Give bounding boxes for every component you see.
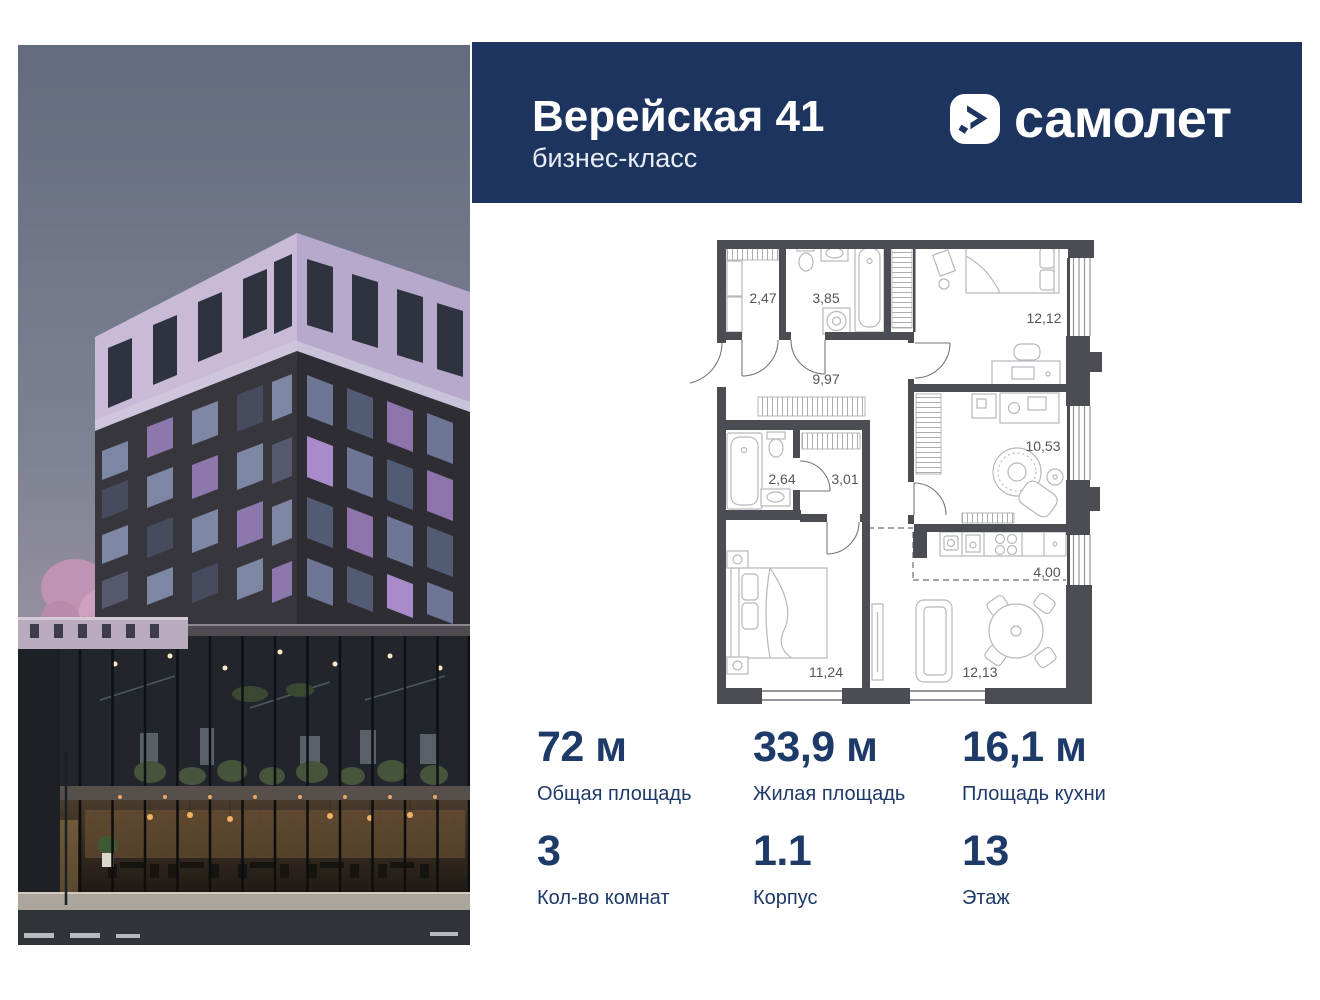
decor-icon — [933, 250, 956, 289]
stat-value: 3 — [537, 830, 669, 873]
stat-living-area: 33,9 м Жилая площадь — [753, 726, 905, 804]
stat-rooms: 3 Кол-во комнат — [537, 830, 669, 908]
room-area-label: 2,64 — [768, 471, 795, 487]
stat-label: Этаж — [962, 888, 1010, 908]
kitchen-counter-icon — [940, 532, 1066, 556]
building-photo — [18, 45, 470, 945]
floor-plan: 2,47 3,85 12,12 9,97 2,64 3,01 10,53 4,0… — [690, 225, 1120, 715]
bathtub-small-icon — [727, 433, 762, 509]
brand-logo: самолет — [950, 92, 1231, 146]
room-area-label: 2,47 — [749, 290, 776, 306]
armchair-icon — [993, 448, 1063, 520]
shelves-icon — [727, 261, 742, 332]
project-title: Верейская 41 — [532, 95, 824, 139]
work-table-icon — [972, 393, 1059, 423]
stat-value: 1.1 — [753, 830, 818, 873]
podium — [18, 624, 470, 892]
stat-label: Жилая площадь — [753, 784, 905, 804]
room-area-label: 3,01 — [831, 471, 858, 487]
room-area-label: 11,24 — [809, 664, 843, 680]
room-area-label: 9,97 — [812, 371, 839, 387]
stat-label: Площадь кухни — [962, 784, 1106, 804]
tv-console-icon — [872, 604, 883, 680]
room-area-label: 3,85 — [812, 290, 839, 306]
stat-floor: 13 Этаж — [962, 830, 1010, 908]
stat-label: Корпус — [753, 888, 818, 908]
room-area-label: 4,00 — [1033, 564, 1060, 580]
project-class: бизнес-класс — [532, 145, 697, 172]
stat-value: 13 — [962, 830, 1010, 873]
stat-value: 16,1 м — [962, 726, 1106, 769]
bathtub-icon — [855, 243, 884, 332]
stat-building: 1.1 Корпус — [753, 830, 818, 908]
stat-value: 72 м — [537, 726, 692, 769]
stat-value: 33,9 м — [753, 726, 905, 769]
stat-kitchen-area: 16,1 м Площадь кухни — [962, 726, 1106, 804]
bed-icon — [966, 244, 1059, 293]
toilet-small-icon — [767, 432, 785, 457]
low-wing — [18, 617, 188, 649]
sink-small-icon — [761, 489, 790, 506]
listing-card: Верейская 41 бизнес-класс самолет — [0, 0, 1320, 1000]
project-banner: Верейская 41 бизнес-класс самолет — [472, 42, 1302, 203]
washer-icon — [823, 308, 850, 334]
sofa-icon — [916, 600, 952, 682]
room-area-label: 10,53 — [1025, 438, 1060, 454]
stat-total-area: 72 м Общая площадь — [537, 726, 692, 804]
dining-table-icon — [983, 592, 1057, 669]
samolet-logo-icon — [950, 94, 1000, 144]
stat-label: Общая площадь — [537, 784, 692, 804]
brand-name: самолет — [1014, 92, 1231, 146]
stat-label: Кол-во комнат — [537, 888, 669, 908]
room-area-label: 12,13 — [962, 664, 997, 680]
double-bed-icon — [731, 568, 827, 658]
room-area-label: 12,12 — [1026, 310, 1061, 326]
desk-icon — [992, 344, 1060, 386]
